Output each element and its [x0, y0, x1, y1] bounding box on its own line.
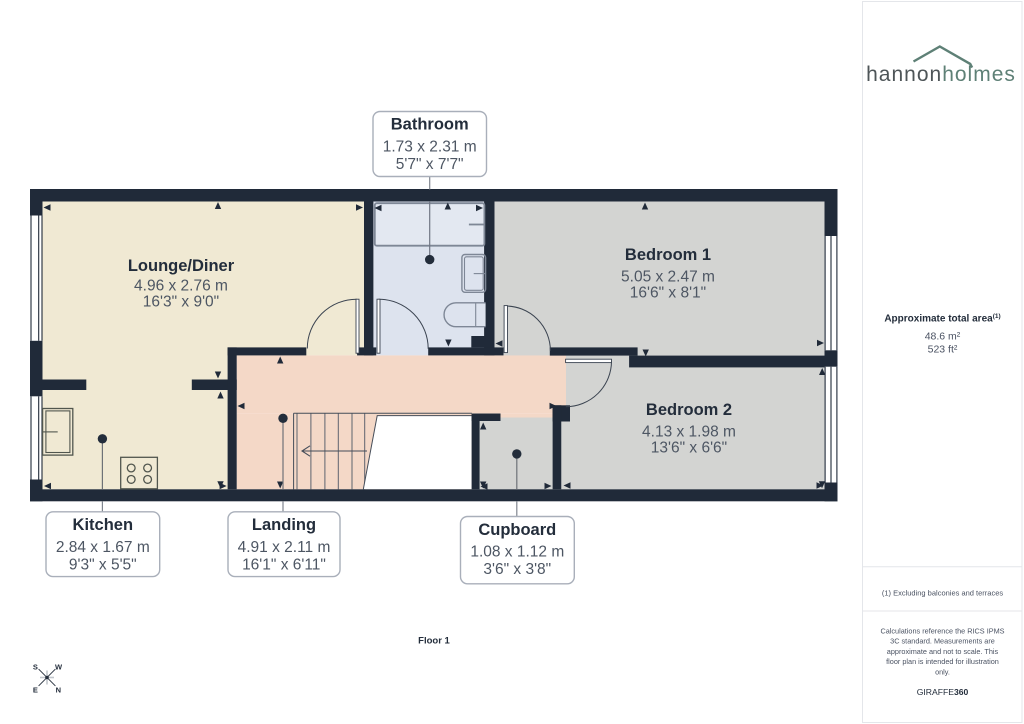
svg-text:only.: only. [935, 667, 950, 676]
svg-text:48.6 m²: 48.6 m² [925, 330, 961, 342]
svg-text:5.05 x 2.47 m: 5.05 x 2.47 m [621, 268, 715, 285]
svg-text:16'3" x 9'0": 16'3" x 9'0" [143, 293, 219, 310]
svg-text:Kitchen: Kitchen [73, 516, 134, 534]
svg-text:4.96 x 2.76 m: 4.96 x 2.76 m [134, 278, 228, 295]
svg-text:Floor 1: Floor 1 [418, 636, 450, 647]
svg-text:(1) Excluding balconies and te: (1) Excluding balconies and terraces [882, 589, 1004, 598]
svg-text:floor plan is intended for ill: floor plan is intended for illustration [886, 657, 999, 666]
svg-text:Bedroom 1: Bedroom 1 [625, 246, 711, 264]
svg-text:Landing: Landing [252, 516, 316, 534]
svg-text:hannonholmes: hannonholmes [866, 63, 1016, 86]
svg-text:Bathroom: Bathroom [391, 116, 469, 134]
svg-text:16'6" x 8'1": 16'6" x 8'1" [630, 284, 706, 301]
svg-text:5'7" x 7'7": 5'7" x 7'7" [396, 156, 464, 173]
svg-text:523 ft²: 523 ft² [928, 343, 958, 355]
svg-text:3'6" x 3'8": 3'6" x 3'8" [483, 561, 551, 578]
svg-text:Lounge/Diner: Lounge/Diner [128, 257, 235, 275]
svg-text:E: E [33, 686, 38, 695]
svg-text:GIRAFFE360: GIRAFFE360 [917, 687, 969, 697]
svg-text:1.73 x 2.31 m: 1.73 x 2.31 m [383, 138, 477, 155]
svg-text:16'1" x 6'11": 16'1" x 6'11" [242, 556, 326, 573]
svg-text:4.91 x 2.11 m: 4.91 x 2.11 m [238, 539, 331, 556]
svg-text:W: W [55, 662, 63, 671]
svg-text:13'6" x 6'6": 13'6" x 6'6" [651, 439, 727, 456]
svg-text:Bedroom 2: Bedroom 2 [646, 401, 732, 419]
svg-text:approximate and not to scale.: approximate and not to scale. This [887, 647, 999, 656]
svg-text:S: S [33, 662, 38, 671]
svg-text:Cupboard: Cupboard [478, 521, 556, 539]
svg-text:N: N [56, 686, 61, 695]
svg-text:Calculations reference the RIC: Calculations reference the RICS IPMS [880, 627, 1004, 636]
svg-text:3C standard. Measurements are: 3C standard. Measurements are [890, 637, 995, 646]
svg-text:2.84 x 1.67 m: 2.84 x 1.67 m [56, 539, 150, 556]
svg-text:4.13 x 1.98 m: 4.13 x 1.98 m [642, 423, 736, 440]
svg-text:1.08 x 1.12 m: 1.08 x 1.12 m [470, 544, 564, 561]
svg-text:9'3" x 5'5": 9'3" x 5'5" [69, 556, 137, 573]
svg-text:Approximate total area(1): Approximate total area(1) [884, 313, 1000, 325]
